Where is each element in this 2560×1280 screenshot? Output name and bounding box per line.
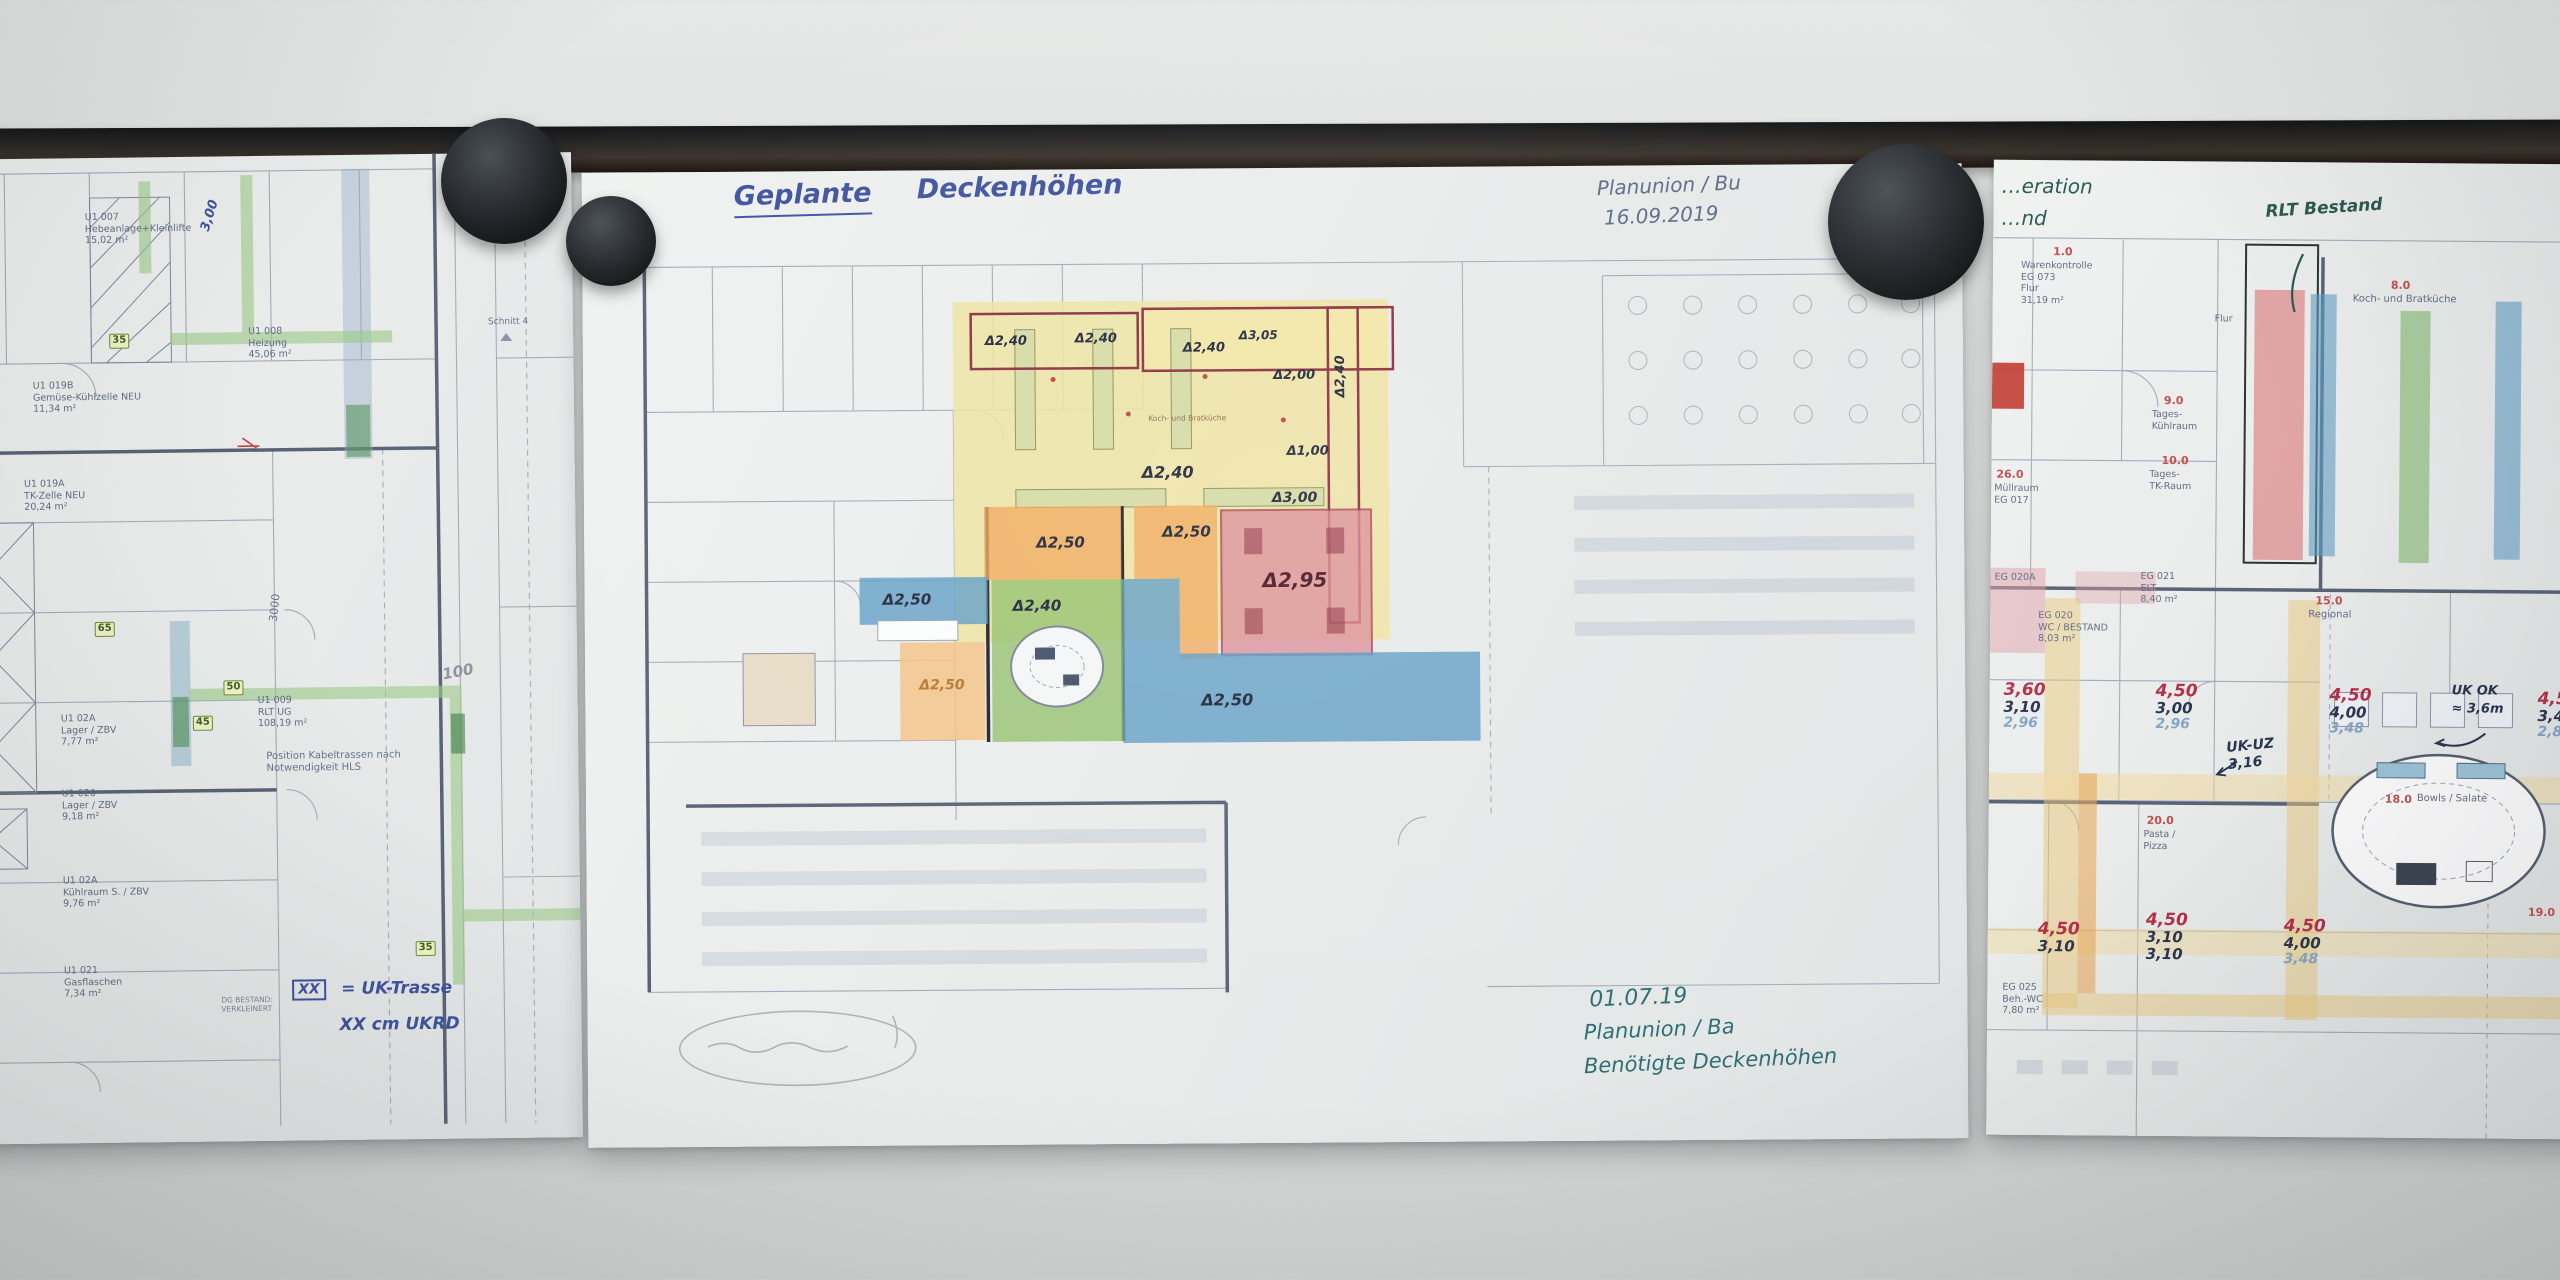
- magnet-left-large: [441, 118, 567, 244]
- ceiling-height-label: Δ2,40: [1183, 340, 1225, 356]
- floorplan-left: U1 007 Hebeanlage+Kleinlifte 15,02 m² U1…: [0, 152, 583, 1145]
- area-number: 10.0: [2161, 454, 2188, 468]
- room-label: U1 009 RLT UG 108,19 m²: [258, 694, 308, 729]
- legend-ukrd: XX cm UKRD: [339, 1014, 459, 1036]
- legend-xx-box: XX: [292, 979, 326, 1000]
- area-name: Koch- und Bratküche: [2353, 293, 2457, 306]
- title-geplante: Geplante: [733, 177, 872, 218]
- tray-height-tag: 35: [416, 941, 436, 956]
- ceiling-height-label: Δ2,50: [883, 590, 932, 609]
- floorplan-right: …eration …nd RLT Bestand 1.0 Warenkontro…: [1986, 160, 2560, 1140]
- area-name: Regional: [2308, 609, 2351, 622]
- tray-height-tag: 45: [193, 716, 213, 731]
- ceiling-height-label: Δ2,40: [1142, 463, 1194, 483]
- area-name: Warenkontrolle EG 073 Flur 31,19 m²: [2021, 260, 2093, 307]
- section-marker: Schnitt 4: [488, 317, 528, 328]
- area-number: 26.0: [1996, 468, 2023, 482]
- height-stack: 4,50 4,00 3,48: [2329, 686, 2371, 736]
- ceiling-height-label: Δ3,05: [1239, 328, 1278, 343]
- tray-height-tag: 65: [95, 622, 115, 637]
- height-red: 4,50: [2146, 911, 2188, 930]
- height-red: 4,50: [2330, 686, 2372, 705]
- area-name: Tages- Kühlraum: [2152, 409, 2198, 433]
- area-number: 1.0: [2053, 245, 2073, 259]
- height-stack: 4,50 4,00 3,48: [2284, 917, 2326, 967]
- tray-height-tag: 50: [223, 680, 243, 695]
- height-light: 3,48: [2329, 721, 2371, 736]
- handwriting-partial-line2: …nd: [2001, 206, 2047, 231]
- height-navy: 3,40: [2537, 708, 2560, 725]
- ceiling-height-label: Δ2,95: [1262, 568, 1327, 593]
- height-light: 3,48: [2284, 952, 2326, 967]
- room-label: U1 007 Hebeanlage+Kleinlifte 15,02 m²: [85, 211, 192, 247]
- area-name: EG 025 Beh.-WC 7,80 m²: [2002, 982, 2043, 1017]
- title-deckenhoehen: Deckenhöhen: [916, 169, 1123, 207]
- planner-note-line2: 16.09.2019: [1603, 201, 1718, 230]
- room-label: U1 02A Kühlraum S. / ZBV 9,76 m²: [63, 874, 149, 910]
- uk-ok-note-line1: UK OK: [2452, 683, 2498, 699]
- area-number: 9.0: [2164, 394, 2184, 408]
- section-triangle-icon: [500, 333, 512, 341]
- ceiling-height-label: Δ2,40: [1013, 596, 1062, 615]
- height-light: 2,85: [2537, 724, 2560, 739]
- area-name: EG 021 ELT 8,40 m²: [2140, 571, 2178, 606]
- height-red: 3,60: [2004, 681, 2046, 700]
- room-label: U1 020 Lager / ZBV 9,18 m²: [62, 788, 118, 823]
- room-label: U1 019A TK-Zelle NEU 20,24 m²: [24, 478, 85, 513]
- height-navy: 4,00: [2284, 935, 2326, 952]
- height-light: 2,96: [2155, 716, 2197, 731]
- floorplan-middle: Geplante Deckenhöhen Planunion / Bu 16.0…: [582, 163, 1969, 1148]
- area-number: 18.0: [2385, 793, 2412, 807]
- ceiling-height-label: Δ2,40: [1075, 331, 1117, 347]
- height-navy: 3,10: [2038, 938, 2080, 955]
- room-label: U1 008 Heizung 45,06 m²: [248, 326, 292, 361]
- height-stack: 3,60 3,10 2,96: [2003, 681, 2045, 731]
- height-stack: 4,50 3,40 2,85: [2537, 690, 2560, 740]
- ceiling-height-label: Δ2,50: [1162, 522, 1211, 541]
- area-number: 20.0: [2147, 814, 2174, 828]
- height-navy: 3,00: [2155, 700, 2197, 717]
- height-light: 2,96: [2003, 715, 2045, 730]
- room-label: U1 02A Lager / ZBV 7,77 m²: [61, 713, 117, 748]
- room-label: U1 019B Gemüse-Kühlzelle NEU 11,34 m²: [33, 379, 142, 415]
- height-red: 4,50: [2038, 920, 2080, 939]
- area-number: 8.0: [2391, 279, 2411, 293]
- ceiling-height-label: Δ1,00: [1287, 444, 1329, 460]
- height-red: 4,50: [2538, 690, 2560, 709]
- tray-height-tag: 35: [109, 334, 129, 349]
- area-name: Tages- TK-Raum: [2149, 469, 2191, 492]
- height-navy: 3,10: [2146, 929, 2188, 946]
- kitchen-room-label: Koch- und Bratküche: [1148, 413, 1226, 423]
- height-stack: 4,50 3,10: [2038, 920, 2080, 955]
- height-stack: 4,50 3,10 3,10: [2146, 911, 2188, 962]
- wall-photo: { "scene": { "description": "Three archi…: [0, 0, 2560, 1280]
- area-name: Flur: [2215, 313, 2233, 325]
- height-navy: 3,10: [2003, 699, 2045, 716]
- ceiling-height-label: Δ2,50: [1036, 533, 1085, 552]
- area-number: 19.0: [2528, 906, 2555, 920]
- uk-uz-note: UK-UZ 3,16: [2226, 735, 2277, 774]
- cable-tray-note: Position Kabeltrassen nach Notwendigkeit…: [266, 749, 401, 775]
- height-navy: 3,10: [2146, 945, 2188, 962]
- area-name: EG 020 WC / BESTAND 8,03 m²: [2038, 610, 2108, 645]
- magnet-right: [1828, 144, 1984, 300]
- area-name: EG 020A: [1995, 572, 2036, 584]
- handwriting-partial-line1: …eration: [2002, 174, 2093, 199]
- area-name: Müllraum EG 017: [1994, 483, 2039, 507]
- required-note-date: 01.07.19: [1589, 983, 1688, 1014]
- ceiling-height-label: Δ2,00: [1273, 368, 1315, 384]
- ceiling-height-label: Δ2,50: [1201, 690, 1253, 710]
- area-name: Bowls / Salate: [2417, 793, 2487, 806]
- height-navy: 4,00: [2329, 705, 2371, 722]
- magnet-left-small: [566, 196, 656, 286]
- ceiling-height-label: Δ2,40: [1333, 355, 1349, 397]
- floorplan-middle-drawing: [582, 163, 1969, 1148]
- legend-uk-trasse: = UK-Trasse: [341, 978, 452, 1000]
- height-red: 4,50: [2156, 682, 2198, 701]
- ceiling-height-label: Δ2,40: [985, 334, 1027, 350]
- plan-stamp: DG BESTAND: VERKLEINERT: [221, 995, 273, 1014]
- floorplan-right-drawing: [1986, 160, 2560, 1140]
- height-stack: 4,50 3,00 2,96: [2155, 682, 2197, 732]
- ceiling-height-label: Δ2,50: [919, 677, 965, 694]
- ceiling-height-label: Δ3,00: [1272, 490, 1318, 507]
- room-label: U1 021 Gasflaschen 7,34 m²: [64, 965, 122, 1000]
- height-red: 4,50: [2284, 917, 2326, 936]
- uk-ok-note-line2: ≈ 3,6m: [2451, 701, 2503, 717]
- area-number: 15.0: [2315, 594, 2342, 608]
- area-name: Pasta / Pizza: [2143, 829, 2175, 852]
